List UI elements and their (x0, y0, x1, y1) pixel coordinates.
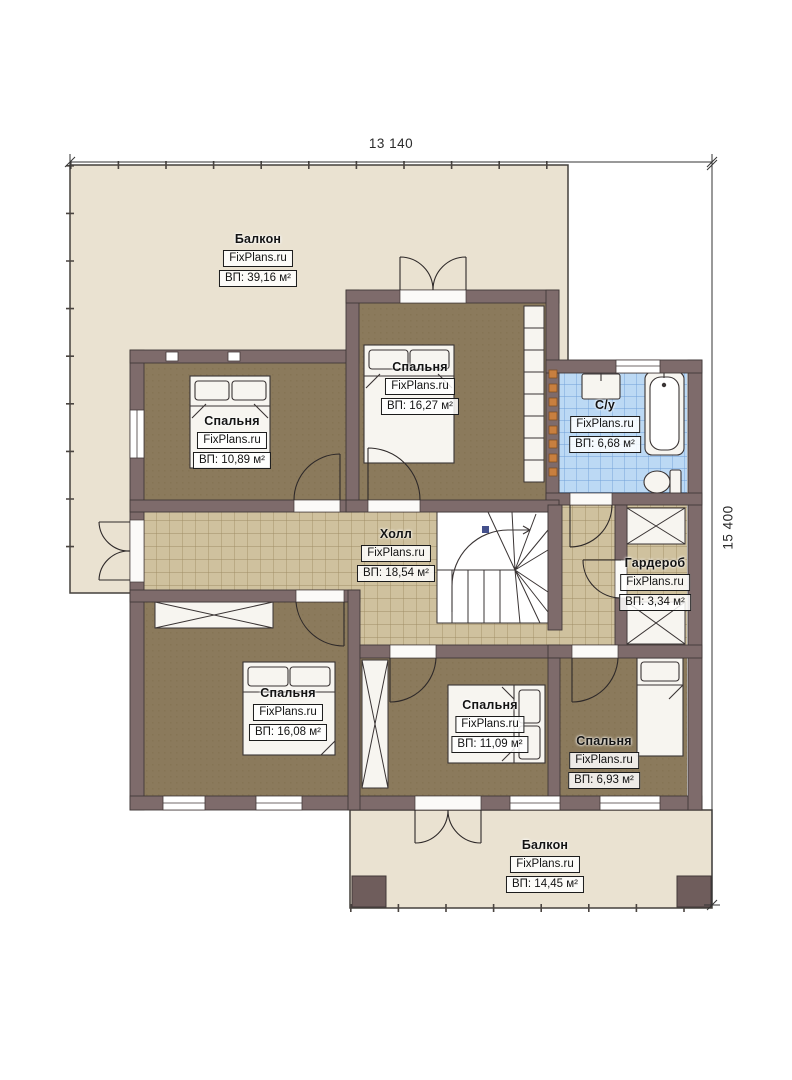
door-gap-bathroom (570, 493, 612, 505)
bathtub (645, 368, 684, 455)
room-name: Гардероб (625, 556, 686, 570)
window-bottom-1 (163, 796, 205, 810)
area-box: ВП: 18,54 м² (357, 565, 435, 582)
dimension-height-label: 15 400 (721, 504, 736, 552)
room-label-wardrobe: Гардероб FixPlans.ru ВП: 3,34 м² (619, 556, 691, 611)
room-name: Спальня (260, 686, 315, 700)
room-label-bedroom-top-middle: Спальня FixPlans.ru ВП: 16,27 м² (381, 360, 459, 415)
closet-wardrobe-top (627, 508, 685, 544)
room-label-balcony-top: Балкон FixPlans.ru ВП: 39,16 м² (219, 232, 297, 287)
room-name: Холл (380, 527, 412, 541)
sink (582, 369, 620, 399)
closet-bottom-middle-bedroom (362, 660, 388, 788)
room-name: Балкон (522, 838, 568, 852)
stairs-start-marker (482, 526, 489, 533)
brand-box: FixPlans.ru (620, 574, 690, 591)
wall-bl-bm-divider (348, 590, 360, 810)
wall-br-north (548, 645, 702, 658)
area-box: ВП: 39,16 м² (219, 270, 297, 287)
room-name: Спальня (462, 698, 517, 712)
wall-bath-south (546, 493, 702, 505)
wall-top-left (130, 350, 359, 363)
room-label-balcony-bottom: Балкон FixPlans.ru ВП: 14,45 м² (506, 838, 584, 893)
room-name: Спальня (204, 414, 259, 428)
area-box: ВП: 16,27 м² (381, 398, 459, 415)
door-gap-bedroom-top-middle (368, 500, 420, 512)
floor-below-stairs (437, 623, 548, 645)
floor-plan-page: Балкон FixPlans.ru ВП: 39,16 м² Спальня … (0, 0, 792, 1080)
door-gap-balcony-top (400, 290, 466, 303)
wall-stairs-right (548, 505, 562, 630)
room-label-bedroom-bottom-middle: Спальня FixPlans.ru ВП: 11,09 м² (451, 698, 528, 753)
room-label-bathroom: С/у FixPlans.ru ВП: 6,68 м² (569, 398, 641, 453)
brand-box: FixPlans.ru (197, 432, 267, 449)
room-label-hall: Холл FixPlans.ru ВП: 18,54 м² (357, 527, 435, 582)
bed-bottom-right-single (637, 658, 683, 756)
brand-box: FixPlans.ru (361, 545, 431, 562)
brand-box: FixPlans.ru (385, 378, 455, 395)
room-name: Спальня (392, 360, 447, 374)
window-bottom-3 (510, 796, 560, 810)
wall-midbed-left (346, 290, 359, 512)
window-bottom-2 (256, 796, 302, 810)
dimension-width-label: 13 140 (369, 136, 413, 151)
dimension-right (704, 160, 720, 910)
door-gap-bedroom-bottom-right (572, 645, 618, 658)
shelf-top-middle-bedroom (524, 306, 544, 482)
area-box: ВП: 11,09 м² (451, 736, 528, 753)
room-label-bedroom-top-left: Спальня FixPlans.ru ВП: 10,89 м² (193, 414, 271, 469)
wall-notch-1 (166, 352, 178, 361)
brand-box: FixPlans.ru (253, 704, 323, 721)
brand-box: FixPlans.ru (223, 250, 293, 267)
room-label-bedroom-bottom-right: Спальня FixPlans.ru ВП: 6,93 м² (568, 734, 640, 789)
area-box: ВП: 6,68 м² (569, 436, 641, 453)
window-bathroom-north (616, 360, 660, 373)
area-box: ВП: 6,93 м² (568, 772, 640, 789)
wall-notch-2 (228, 352, 240, 361)
brand-box: FixPlans.ru (510, 856, 580, 873)
door-gap-bedroom-bottom-middle (390, 645, 436, 658)
room-name: Спальня (576, 734, 631, 748)
window-left-wall (130, 410, 144, 458)
wall-wardrobe-west-upper (615, 505, 627, 560)
window-bottom-4 (600, 796, 660, 810)
wall-bm-br-divider (548, 658, 560, 796)
area-box: ВП: 3,34 м² (619, 594, 691, 611)
area-box: ВП: 10,89 м² (193, 452, 271, 469)
area-box: ВП: 14,45 м² (506, 876, 584, 893)
door-gap-bedroom-bottom-left (296, 590, 344, 602)
closet-bottom-left-bedroom (155, 602, 273, 628)
staircase (437, 512, 548, 623)
toilet (644, 470, 681, 495)
brand-box: FixPlans.ru (570, 416, 640, 433)
room-label-bedroom-bottom-left: Спальня FixPlans.ru ВП: 16,08 м² (249, 686, 327, 741)
door-gap-balcony-bottom (415, 796, 481, 810)
brand-box: FixPlans.ru (569, 752, 639, 769)
room-name: С/у (595, 398, 615, 412)
door-gap-french-left (130, 520, 144, 582)
balcony-post-right (677, 876, 711, 907)
brand-box: FixPlans.ru (455, 716, 525, 733)
balcony-post-left (352, 876, 386, 907)
door-gap-bedroom-top-left (294, 500, 340, 512)
area-box: ВП: 16,08 м² (249, 724, 327, 741)
floor-passage (548, 630, 562, 645)
room-name: Балкон (235, 232, 281, 246)
